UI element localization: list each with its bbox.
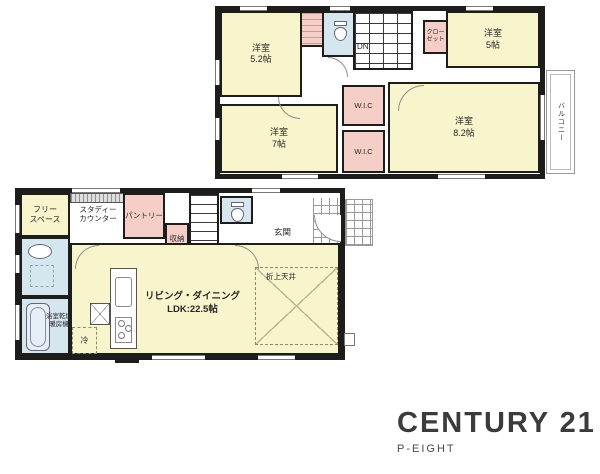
wic-label: W.I.C	[354, 101, 372, 110]
walk-in-closet-upper: W.I.C	[342, 85, 385, 126]
refrigerator-space: 冷	[72, 327, 97, 354]
window	[152, 355, 205, 360]
exterior-equipment	[344, 333, 355, 346]
balcony: バルコニー	[546, 70, 575, 174]
entrance-label: 玄関	[274, 226, 291, 238]
study-counter	[70, 193, 126, 203]
window	[240, 6, 267, 11]
floorplan-canvas: 洋室 5.2帖 DN クロー ゼット 洋室 5帖 W.I.C W.I.C 洋室 …	[0, 0, 600, 474]
wic-label: W.I.C	[354, 147, 372, 156]
room-label: 洋室	[252, 43, 270, 54]
closet-label: クロー	[426, 30, 444, 38]
toilet-room-2f	[322, 11, 355, 57]
window	[215, 60, 220, 85]
room-size: 5帖	[486, 40, 500, 51]
brand-name: CENTURY 21	[397, 407, 592, 440]
window	[438, 174, 485, 179]
kitchen-sink-icon	[115, 277, 132, 307]
washer-space	[30, 265, 54, 287]
window	[330, 6, 350, 11]
window	[282, 174, 318, 179]
room-size: 8.2帖	[453, 128, 475, 139]
office-name: P-EIGHT	[397, 443, 592, 455]
entrance-hall: 玄関	[270, 196, 315, 246]
brand-logo: CENTURY 21 P-EIGHT	[397, 407, 592, 455]
room-size: 7帖	[272, 139, 286, 150]
room-label: 洋室	[484, 28, 502, 39]
balcony-door	[540, 95, 545, 140]
pantry-label: パントリー	[125, 211, 163, 220]
pantry: パントリー	[123, 193, 165, 239]
sink-icon	[28, 244, 52, 259]
second-floor-plan: 洋室 5.2帖 DN クロー ゼット 洋室 5帖 W.I.C W.I.C 洋室 …	[215, 6, 545, 179]
window	[15, 255, 20, 273]
raised-ceiling-area: 折上天井	[255, 267, 338, 345]
stairs-down-2f: DN	[353, 11, 413, 70]
room-bedroom-5-2: 洋室 5.2帖	[220, 11, 302, 97]
stove-icon	[115, 317, 132, 343]
window	[15, 205, 20, 233]
bathroom-label: 浴室乾燥 暖房機	[46, 313, 72, 330]
room-label: フリー	[33, 205, 57, 215]
stairs-dn-label: DN	[357, 42, 369, 52]
room-label: 洋室	[270, 127, 288, 138]
closet-label: ゼット	[426, 37, 444, 45]
living-dining-label: リビング・ダイニング LDK:22.5帖	[115, 291, 270, 317]
window	[252, 188, 280, 193]
window	[72, 188, 120, 193]
room-bedroom-7: 洋室 7帖	[220, 104, 338, 173]
raised-ceiling-label: 折上天井	[266, 271, 296, 282]
kitchen-counter	[110, 268, 137, 349]
room-label: 洋室	[455, 116, 473, 127]
window	[15, 305, 20, 340]
toilet-room-1f	[220, 196, 253, 224]
room-label: スペース	[29, 215, 60, 225]
exterior-step	[115, 355, 139, 363]
room-bedroom-5: 洋室 5帖	[446, 11, 540, 68]
window	[466, 6, 493, 11]
balcony-rail	[550, 74, 571, 170]
washroom	[20, 237, 70, 297]
toilet-icon	[334, 21, 348, 41]
door-arc	[328, 57, 348, 77]
refrigerator-label: 冷	[81, 335, 89, 346]
closet-small	[300, 11, 324, 47]
window	[258, 355, 295, 360]
closet-2f: クロー ゼット	[423, 20, 448, 54]
toilet-icon	[231, 202, 245, 222]
entrance-porch	[345, 199, 373, 246]
window	[215, 118, 220, 140]
first-floor-plan: フリー スペース スタディー カウンター パントリー 収納 ∨ UP 玄関	[15, 188, 345, 360]
bathroom: 浴室乾燥 暖房機	[20, 297, 70, 355]
walk-in-closet-lower: W.I.C	[342, 130, 385, 173]
kitchen-island-icon	[90, 303, 110, 325]
room-size: 5.2帖	[250, 54, 272, 65]
